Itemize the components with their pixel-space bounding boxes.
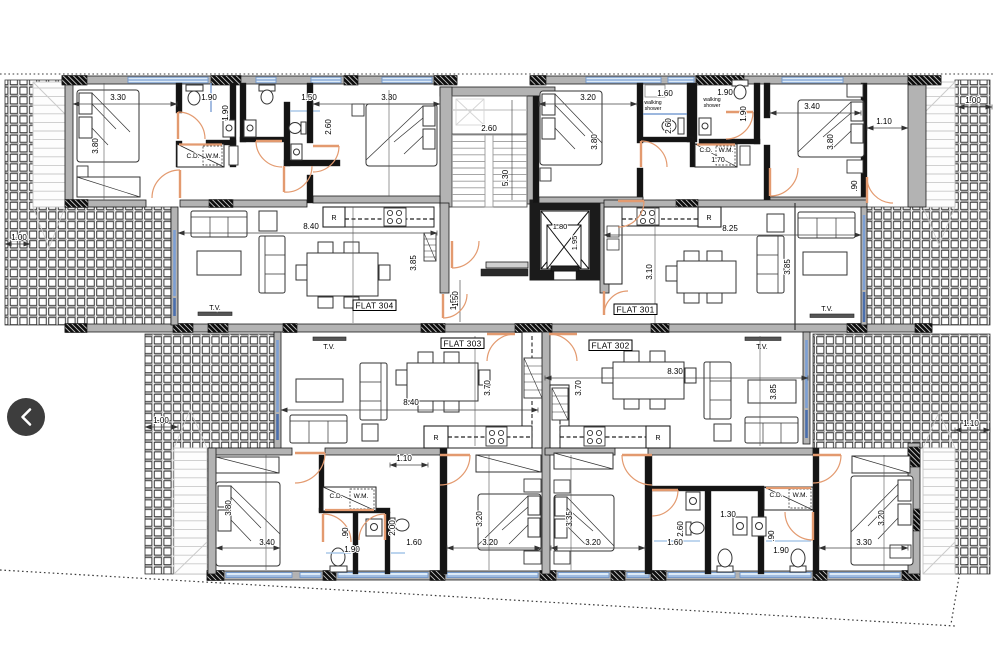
svg-text:R: R [331,215,336,222]
svg-text:5.30: 5.30 [500,169,510,186]
svg-text:.90: .90 [850,180,859,192]
svg-text:1.95: 1.95 [570,236,579,251]
svg-text:T.V.: T.V. [756,344,767,351]
svg-text:3.10: 3.10 [645,264,654,280]
svg-text:2.60: 2.60 [664,118,673,134]
svg-text:3.30: 3.30 [856,538,872,547]
svg-text:3.70: 3.70 [574,380,583,396]
svg-text:3.85: 3.85 [409,255,418,271]
svg-text:1.10: 1.10 [876,117,892,126]
svg-text:shower: shower [645,106,662,112]
svg-text:1.70: 1.70 [711,157,725,164]
svg-text:1.90: 1.90 [221,105,230,121]
svg-text:FLAT 302: FLAT 302 [591,340,629,350]
svg-text:8.25: 8.25 [722,224,738,233]
svg-text:3.80: 3.80 [826,134,835,150]
svg-text:3.20: 3.20 [877,510,886,526]
svg-text:8.30: 8.30 [667,367,683,376]
svg-text:.90: .90 [341,527,350,539]
svg-text:shower: shower [704,103,721,109]
svg-text:1.90: 1.90 [773,546,789,555]
svg-text:3.30: 3.30 [110,93,126,102]
svg-text:1.60: 1.60 [667,538,683,547]
svg-text:C.D.: C.D. [770,492,783,499]
svg-text:1.50: 1.50 [301,93,317,102]
svg-text:R: R [655,435,660,442]
svg-text:1.10: 1.10 [396,454,412,463]
svg-text:1.90: 1.90 [717,88,733,97]
svg-text:.90: .90 [767,530,776,542]
svg-text:2.60: 2.60 [324,119,333,135]
svg-text:C.D.: C.D. [700,147,713,154]
svg-text:W.M.: W.M. [719,147,734,154]
svg-text:T.V.: T.V. [323,344,334,351]
svg-text:T.V.: T.V. [209,305,220,312]
svg-text:3.85: 3.85 [783,259,792,275]
svg-text:1.30: 1.30 [720,510,736,519]
svg-text:1.90: 1.90 [739,106,748,122]
svg-text:3.20: 3.20 [585,538,601,547]
svg-text:2.60: 2.60 [676,521,685,537]
svg-text:3.70: 3.70 [483,380,492,396]
svg-text:3.20: 3.20 [475,511,484,527]
svg-text:1.90: 1.90 [201,93,217,102]
svg-text:FLAT 304: FLAT 304 [355,300,393,310]
svg-text:3.40: 3.40 [259,538,275,547]
svg-text:1.00: 1.00 [965,96,981,105]
svg-text:1.60: 1.60 [657,89,673,98]
svg-text:1.50: 1.50 [451,291,460,307]
svg-text:3.20: 3.20 [580,93,596,102]
svg-text:3.20: 3.20 [482,538,498,547]
svg-text:FLAT 303: FLAT 303 [443,338,481,348]
svg-text:1.80: 1.80 [553,222,568,231]
svg-text:FLAT 301: FLAT 301 [616,304,654,314]
svg-text:1.10: 1.10 [963,419,979,428]
svg-text:2.00: 2.00 [388,520,397,536]
svg-text:1.60: 1.60 [406,538,422,547]
svg-text:8.40: 8.40 [403,398,419,407]
svg-text:W.M.: W.M. [793,492,808,499]
svg-text:R: R [706,215,711,222]
svg-text:3.35: 3.35 [565,511,574,527]
svg-text:3.80: 3.80 [224,500,233,516]
svg-text:3.80: 3.80 [91,138,100,154]
svg-text:1.90: 1.90 [344,545,360,554]
svg-text:8.40: 8.40 [303,222,319,231]
svg-text:1.00: 1.00 [11,233,27,242]
svg-text:3.80: 3.80 [590,134,599,150]
svg-text:2.60: 2.60 [481,124,497,133]
svg-text:C.D.: C.D. [330,493,343,500]
svg-text:C.D.: C.D. [187,153,200,160]
svg-text:1.00: 1.00 [153,416,169,425]
svg-text:W.M.: W.M. [354,493,369,500]
svg-text:T.V.: T.V. [821,306,832,313]
svg-text:W.M.: W.M. [206,153,221,160]
svg-text:3.40: 3.40 [804,102,820,111]
svg-text:3.85: 3.85 [769,384,778,400]
svg-text:R: R [433,435,438,442]
